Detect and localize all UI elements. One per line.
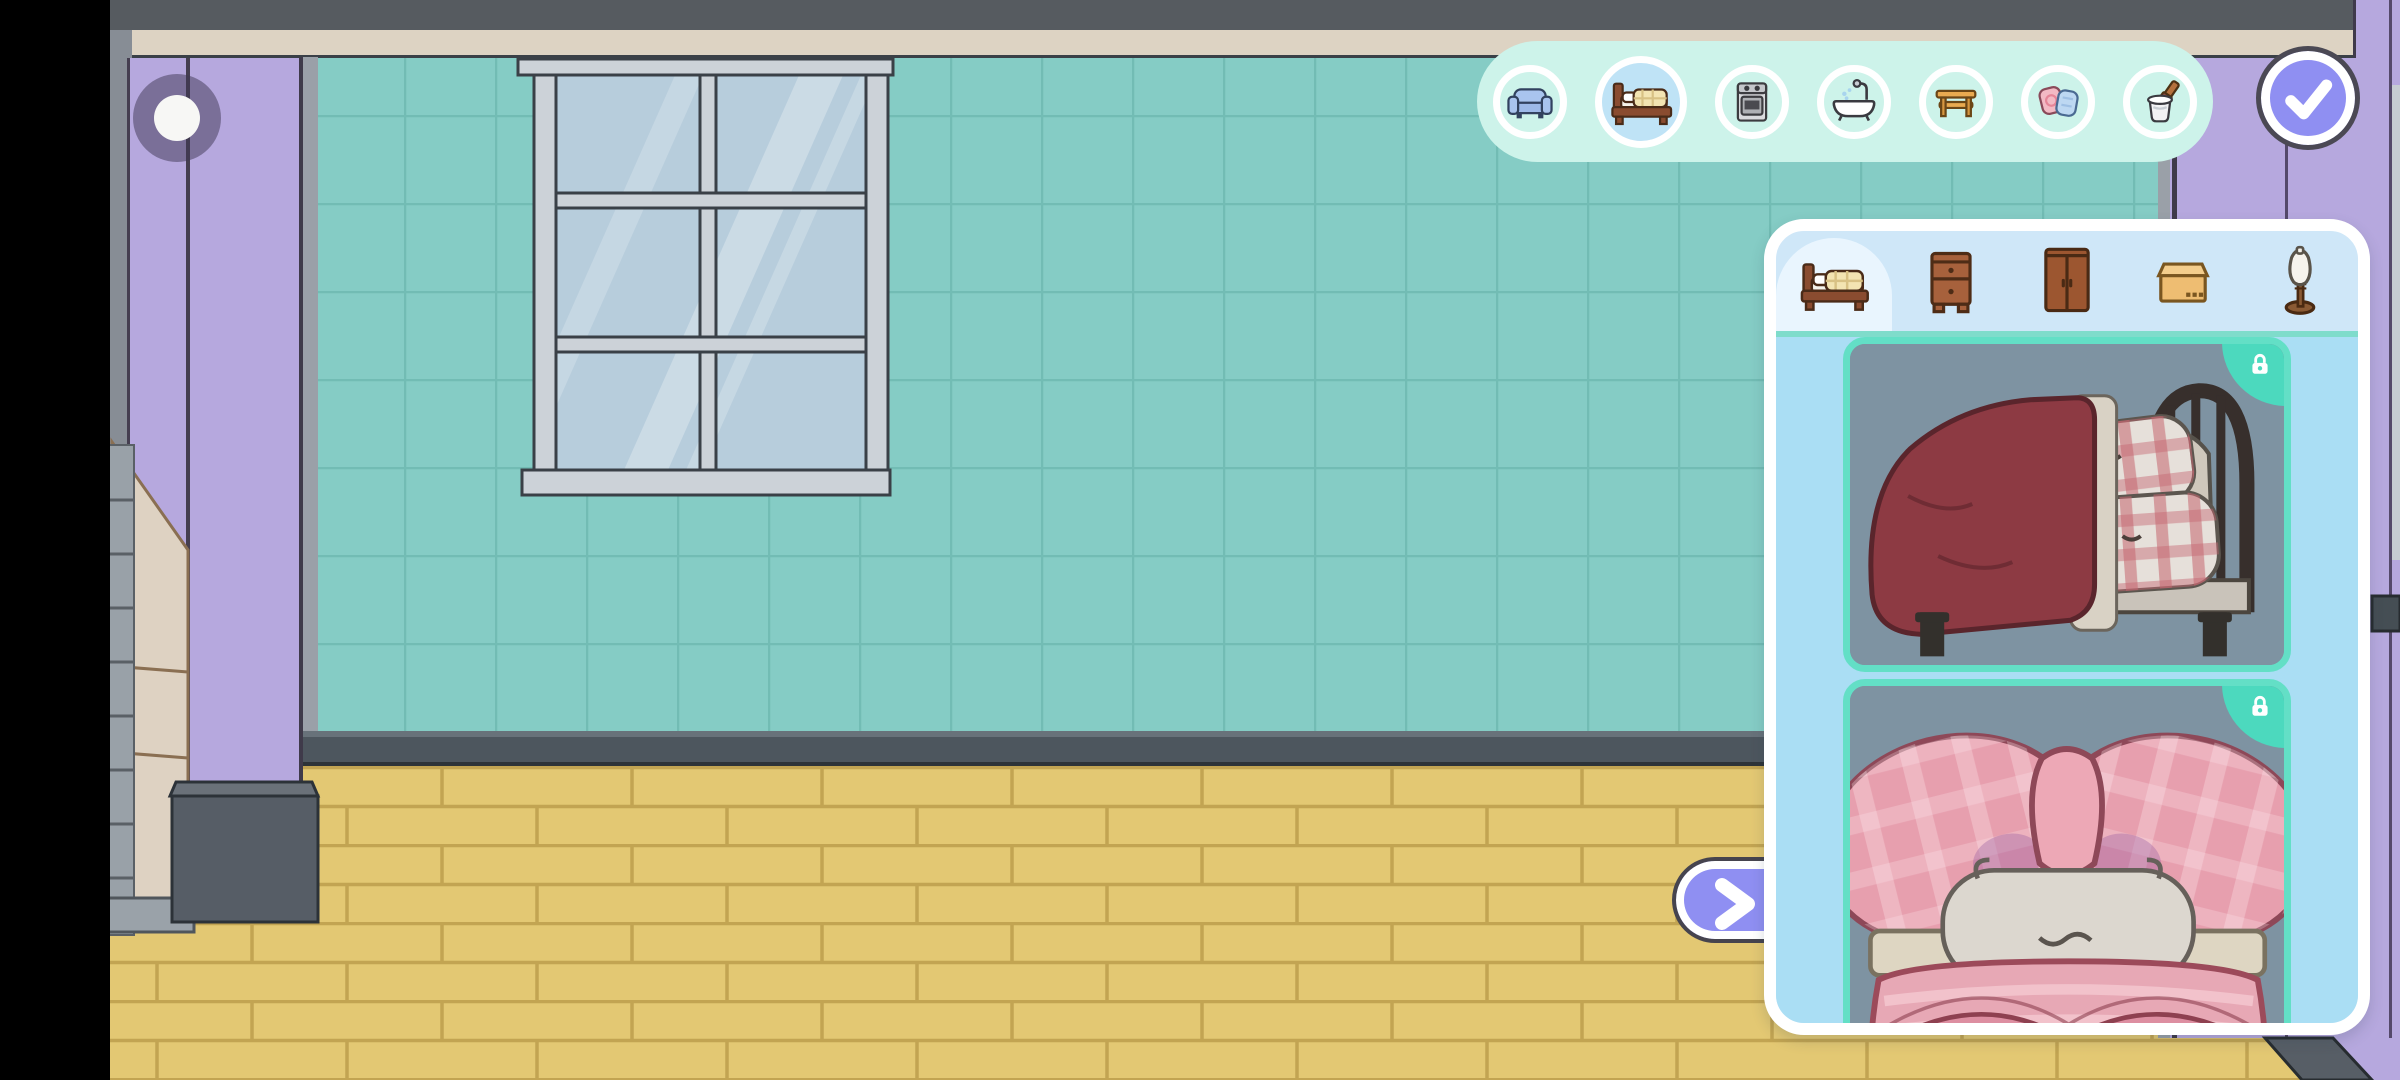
table-icon [1930,76,1982,128]
confirm-button[interactable] [2256,46,2360,150]
check-icon [2271,61,2345,135]
pillar-base [170,782,318,922]
paint-bucket-icon [2134,76,2186,128]
game-screen [0,0,2400,1080]
sofa-icon [1504,76,1556,128]
category-tables[interactable] [1919,65,1993,139]
screen-edge [0,0,110,1080]
bed-red-preview [1850,344,2284,665]
wardrobe-icon [2030,244,2104,318]
bathtub-icon [1828,76,1880,128]
bed-icon [1608,69,1674,135]
tab-mannequins[interactable] [2242,231,2358,331]
category-toolbar [1477,41,2213,162]
item-card-metal-frame-bed[interactable] [1843,337,2291,672]
tab-wardrobes[interactable] [2009,231,2125,331]
bed-icon [1797,248,1871,322]
nightstand-icon [1914,244,1988,318]
item-list [1776,337,2358,1023]
category-cushions[interactable] [2021,65,2095,139]
furniture-panel [1764,219,2370,1035]
dot-icon [154,95,200,141]
window [500,59,893,495]
category-beds[interactable] [1595,56,1687,148]
camera-button[interactable] [133,74,221,162]
category-paint[interactable] [2123,65,2197,139]
mannequin-icon [2263,244,2337,318]
item-card-bow-bed[interactable] [1843,679,2291,1023]
lock-icon [2247,351,2273,377]
category-appliances[interactable] [1715,65,1789,139]
cushions-icon [2032,76,2084,128]
tab-boxes[interactable] [2125,231,2241,331]
bed-pink-preview [1850,686,2284,1023]
panel-tabs [1776,231,2358,331]
stove-icon [1726,76,1778,128]
lock-icon [2247,693,2273,719]
category-sofas[interactable] [1493,65,1567,139]
tab-nightstands[interactable] [1892,231,2008,331]
tab-beds[interactable] [1776,238,1892,331]
box-icon [2146,244,2220,318]
category-bathroom[interactable] [1817,65,1891,139]
